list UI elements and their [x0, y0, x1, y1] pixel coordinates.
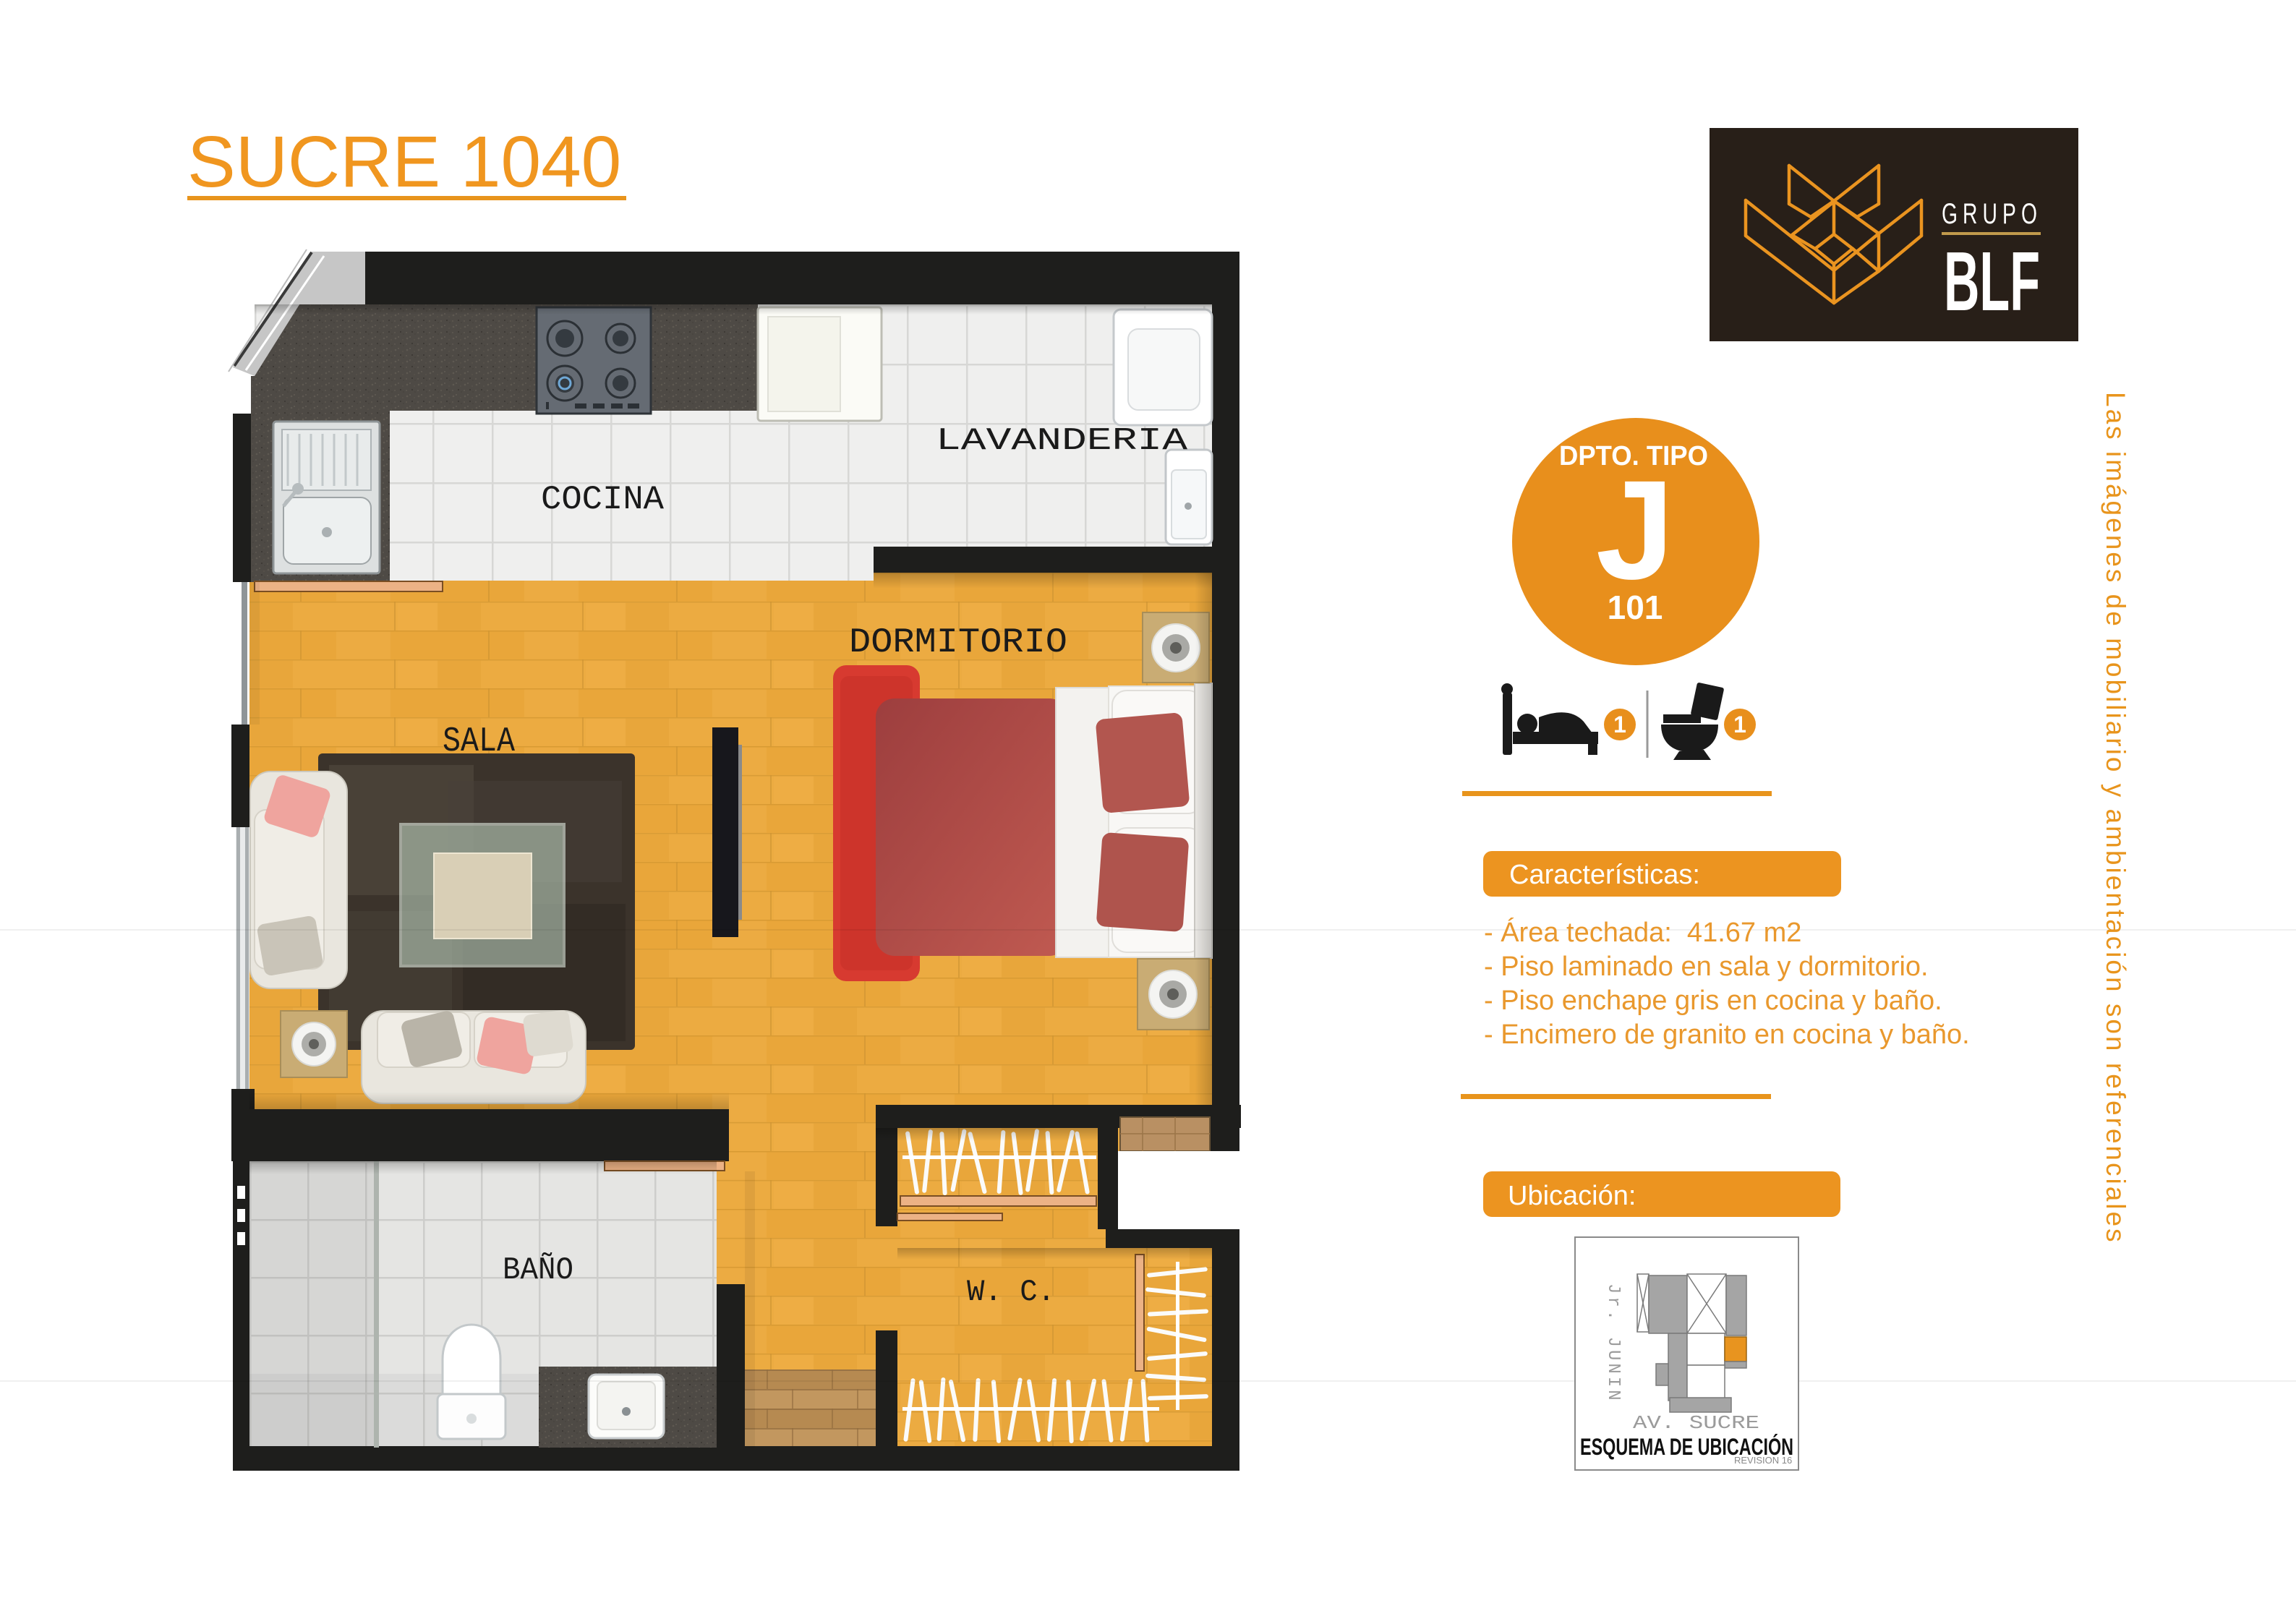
svg-text:GRUPO: GRUPO	[1942, 198, 2042, 230]
svg-text:COCINA: COCINA	[541, 481, 664, 518]
svg-text:101: 101	[1608, 589, 1663, 626]
svg-text:SUCRE 1040: SUCRE 1040	[187, 121, 621, 202]
svg-text:- Piso enchape gris en cocina: - Piso enchape gris en cocina y baño.	[1484, 986, 1942, 1016]
svg-text:J: J	[1596, 451, 1674, 609]
svg-text:1: 1	[1733, 711, 1746, 738]
svg-text:Características:: Características:	[1509, 860, 1700, 890]
svg-text:AV. SUCRE: AV. SUCRE	[1633, 1412, 1759, 1434]
svg-text:W. C.: W. C.	[967, 1275, 1055, 1309]
svg-text:1: 1	[1613, 711, 1626, 738]
svg-text:- Área techada: 41.67 m2: - Área techada: 41.67 m2	[1484, 917, 1801, 948]
svg-text:Ubicación:: Ubicación:	[1508, 1181, 1636, 1211]
svg-text:LAVANDERIA: LAVANDERIA	[936, 423, 1188, 459]
svg-text:DORMITORIO: DORMITORIO	[849, 623, 1067, 662]
svg-text:BAÑO: BAÑO	[503, 1252, 573, 1288]
svg-text:Las imágenes de mobiliario y a: Las imágenes de mobiliario y ambientació…	[2101, 392, 2130, 1244]
svg-text:Jr. JUNIN: Jr. JUNIN	[1603, 1283, 1623, 1403]
svg-text:BLF: BLF	[1944, 234, 2040, 328]
svg-text:- Piso laminado en sala y dorm: - Piso laminado en sala y dormitorio.	[1484, 952, 1929, 982]
svg-text:REVISION 16: REVISION 16	[1734, 1455, 1792, 1466]
svg-text:SALA: SALA	[443, 722, 515, 761]
svg-text:- Encimero de granito en cocin: - Encimero de granito en cocina y baño.	[1484, 1020, 1970, 1050]
